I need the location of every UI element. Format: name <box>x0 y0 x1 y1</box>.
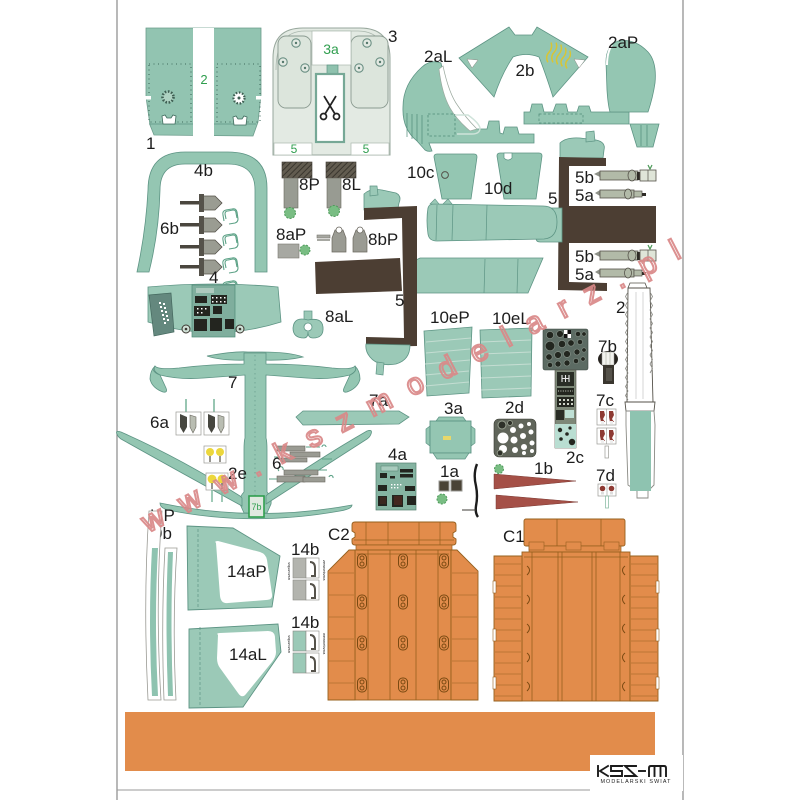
svg-text:1b: 1b <box>534 459 553 478</box>
svg-text:6b: 6b <box>160 219 179 238</box>
svg-text:8L: 8L <box>342 175 361 194</box>
svg-text:uszczelka: uszczelka <box>286 562 291 580</box>
svg-text:10c: 10c <box>407 163 435 182</box>
svg-text:7b: 7b <box>598 337 617 356</box>
svg-text:7: 7 <box>228 373 237 392</box>
svg-text:1a: 1a <box>440 462 459 481</box>
svg-text:8aP: 8aP <box>276 225 306 244</box>
svg-text:4: 4 <box>209 268 218 287</box>
svg-text:MODELARSKI SWIAT: MODELARSKI SWIAT <box>600 779 671 785</box>
svg-text:8aL: 8aL <box>325 307 353 326</box>
svg-text:4b: 4b <box>194 161 213 180</box>
svg-text:3a: 3a <box>444 399 463 418</box>
svg-text:5: 5 <box>363 142 370 156</box>
svg-text:2c: 2c <box>566 448 584 467</box>
svg-text:14aP: 14aP <box>227 562 267 581</box>
svg-text:uszczelka: uszczelka <box>286 635 291 653</box>
svg-text:5b: 5b <box>575 247 594 266</box>
svg-text:7d: 7d <box>596 466 615 485</box>
svg-text:C1: C1 <box>503 527 525 546</box>
svg-text:7c: 7c <box>596 391 614 410</box>
svg-text:8P: 8P <box>299 175 320 194</box>
svg-text:C2: C2 <box>328 525 350 544</box>
svg-text:10d: 10d <box>484 179 512 198</box>
svg-text:4a: 4a <box>388 445 407 464</box>
svg-text:5b: 5b <box>575 168 594 187</box>
svg-text:2: 2 <box>200 72 207 87</box>
svg-text:5: 5 <box>548 189 557 208</box>
svg-text:2aP: 2aP <box>608 33 638 52</box>
svg-text:8bP: 8bP <box>368 230 398 249</box>
svg-text:7b: 7b <box>251 502 261 512</box>
svg-text:zewnetrzna: zewnetrzna <box>322 560 327 581</box>
svg-text:1: 1 <box>146 134 155 153</box>
svg-text:6a: 6a <box>150 413 169 432</box>
svg-text:3: 3 <box>388 27 397 46</box>
svg-text:14aL: 14aL <box>229 645 267 664</box>
svg-text:5: 5 <box>395 291 404 310</box>
svg-text:wewnetrzna: wewnetrzna <box>322 633 327 655</box>
svg-text:14b: 14b <box>291 540 319 559</box>
svg-text:2: 2 <box>616 298 625 317</box>
svg-text:5a: 5a <box>575 186 594 205</box>
svg-text:2b: 2b <box>516 61 535 80</box>
svg-text:10eP: 10eP <box>430 308 470 327</box>
svg-text:2d: 2d <box>505 398 524 417</box>
svg-text:2aL: 2aL <box>424 47 452 66</box>
svg-text:5: 5 <box>291 142 298 156</box>
svg-text:3a: 3a <box>323 41 339 57</box>
svg-text:14b: 14b <box>291 613 319 632</box>
